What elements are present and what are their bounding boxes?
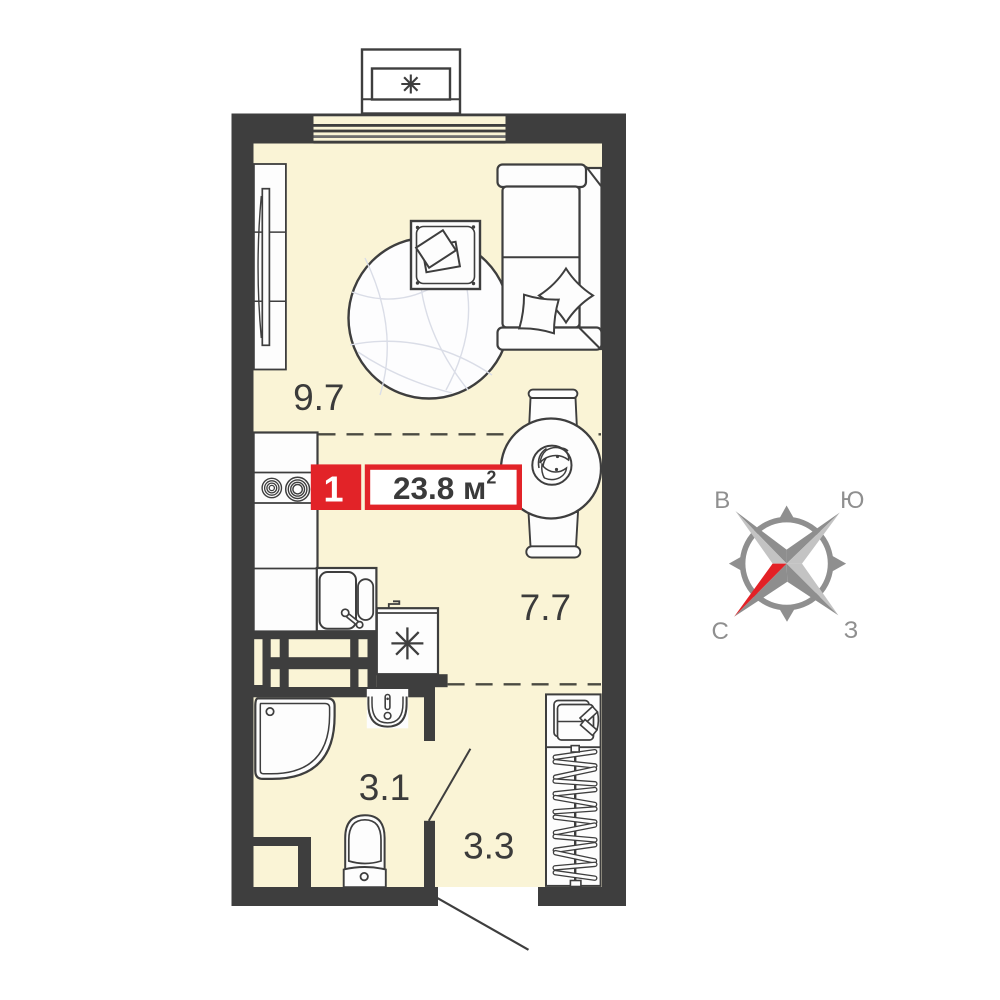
svg-text:Ю: Ю [840,487,864,514]
svg-text:3.1: 3.1 [359,767,410,808]
svg-text:7.7: 7.7 [520,587,571,628]
svg-text:9.7: 9.7 [293,377,344,418]
svg-text:В: В [714,487,730,514]
svg-text:1: 1 [323,469,343,510]
svg-text:С: С [712,618,729,645]
svg-text:З: З [844,617,859,644]
svg-text:3.3: 3.3 [463,826,514,867]
svg-text:23.8 м2: 23.8 м2 [393,468,496,507]
